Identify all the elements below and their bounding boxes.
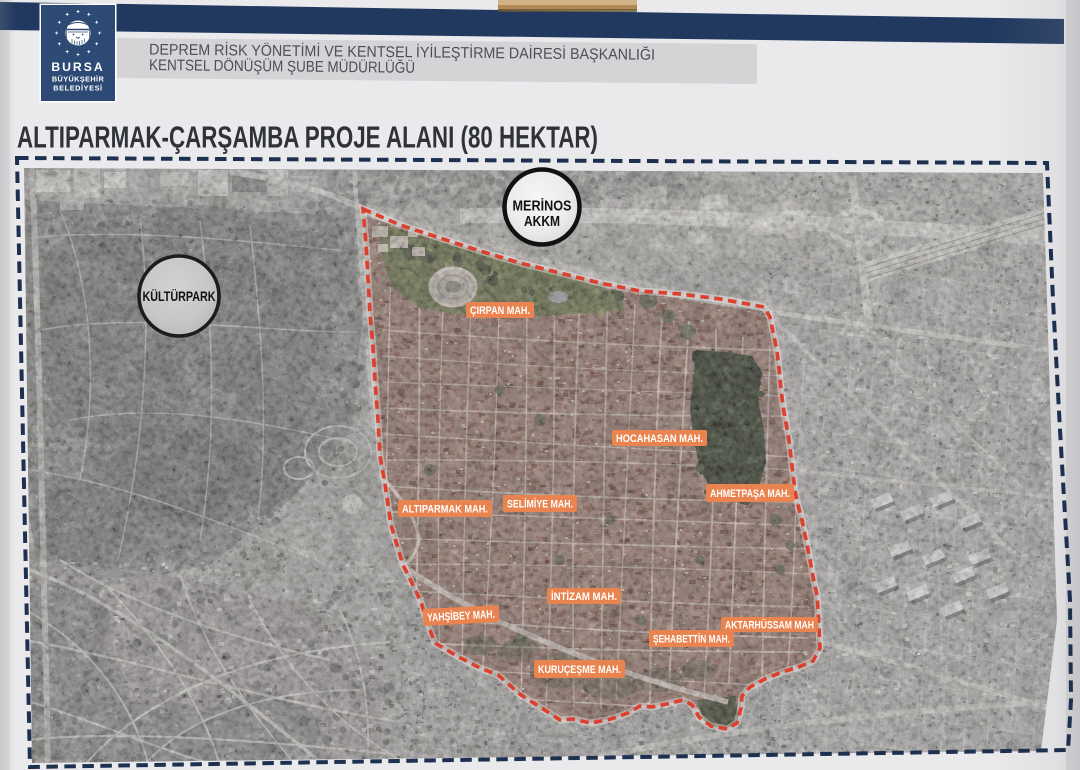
svg-text:AHMETPAŞA MAH.: AHMETPAŞA MAH. bbox=[710, 488, 790, 500]
svg-text:MERİNOS: MERİNOS bbox=[513, 198, 572, 215]
svg-text:ŞEHABETTİN MAH.: ŞEHABETTİN MAH. bbox=[653, 633, 730, 646]
svg-text:KENTSEL DÖNÜŞÜM ŞUBE MÜDÜRLÜĞÜ: KENTSEL DÖNÜŞÜM ŞUBE MÜDÜRLÜĞÜ bbox=[149, 56, 415, 77]
svg-text:ÇIRPAN MAH.: ÇIRPAN MAH. bbox=[470, 305, 530, 317]
svg-text:AKTARHÜSSAM MAH: AKTARHÜSSAM MAH bbox=[725, 619, 814, 632]
svg-text:HOCAHASAN MAH.: HOCAHASAN MAH. bbox=[616, 433, 703, 445]
svg-text:ALTIPARMAK MAH.: ALTIPARMAK MAH. bbox=[402, 504, 488, 516]
svg-text:İNTİZAM MAH.: İNTİZAM MAH. bbox=[551, 590, 617, 603]
svg-text:SELİMİYE MAH.: SELİMİYE MAH. bbox=[507, 498, 573, 511]
svg-text:BÜYÜKŞEHİR: BÜYÜKŞEHİR bbox=[52, 75, 105, 84]
svg-text:AKKM: AKKM bbox=[524, 213, 560, 230]
svg-text:KURUÇEŞME MAH.: KURUÇEŞME MAH. bbox=[538, 664, 621, 676]
svg-text:BELEDİYESİ: BELEDİYESİ bbox=[53, 84, 102, 93]
svg-text:ALTIPARMAK-ÇARŞAMBA PROJE ALAN: ALTIPARMAK-ÇARŞAMBA PROJE ALANI (80 HEKT… bbox=[17, 120, 598, 155]
svg-text:KÜLTÜRPARK: KÜLTÜRPARK bbox=[143, 288, 216, 304]
svg-text:BURSA: BURSA bbox=[51, 60, 104, 74]
